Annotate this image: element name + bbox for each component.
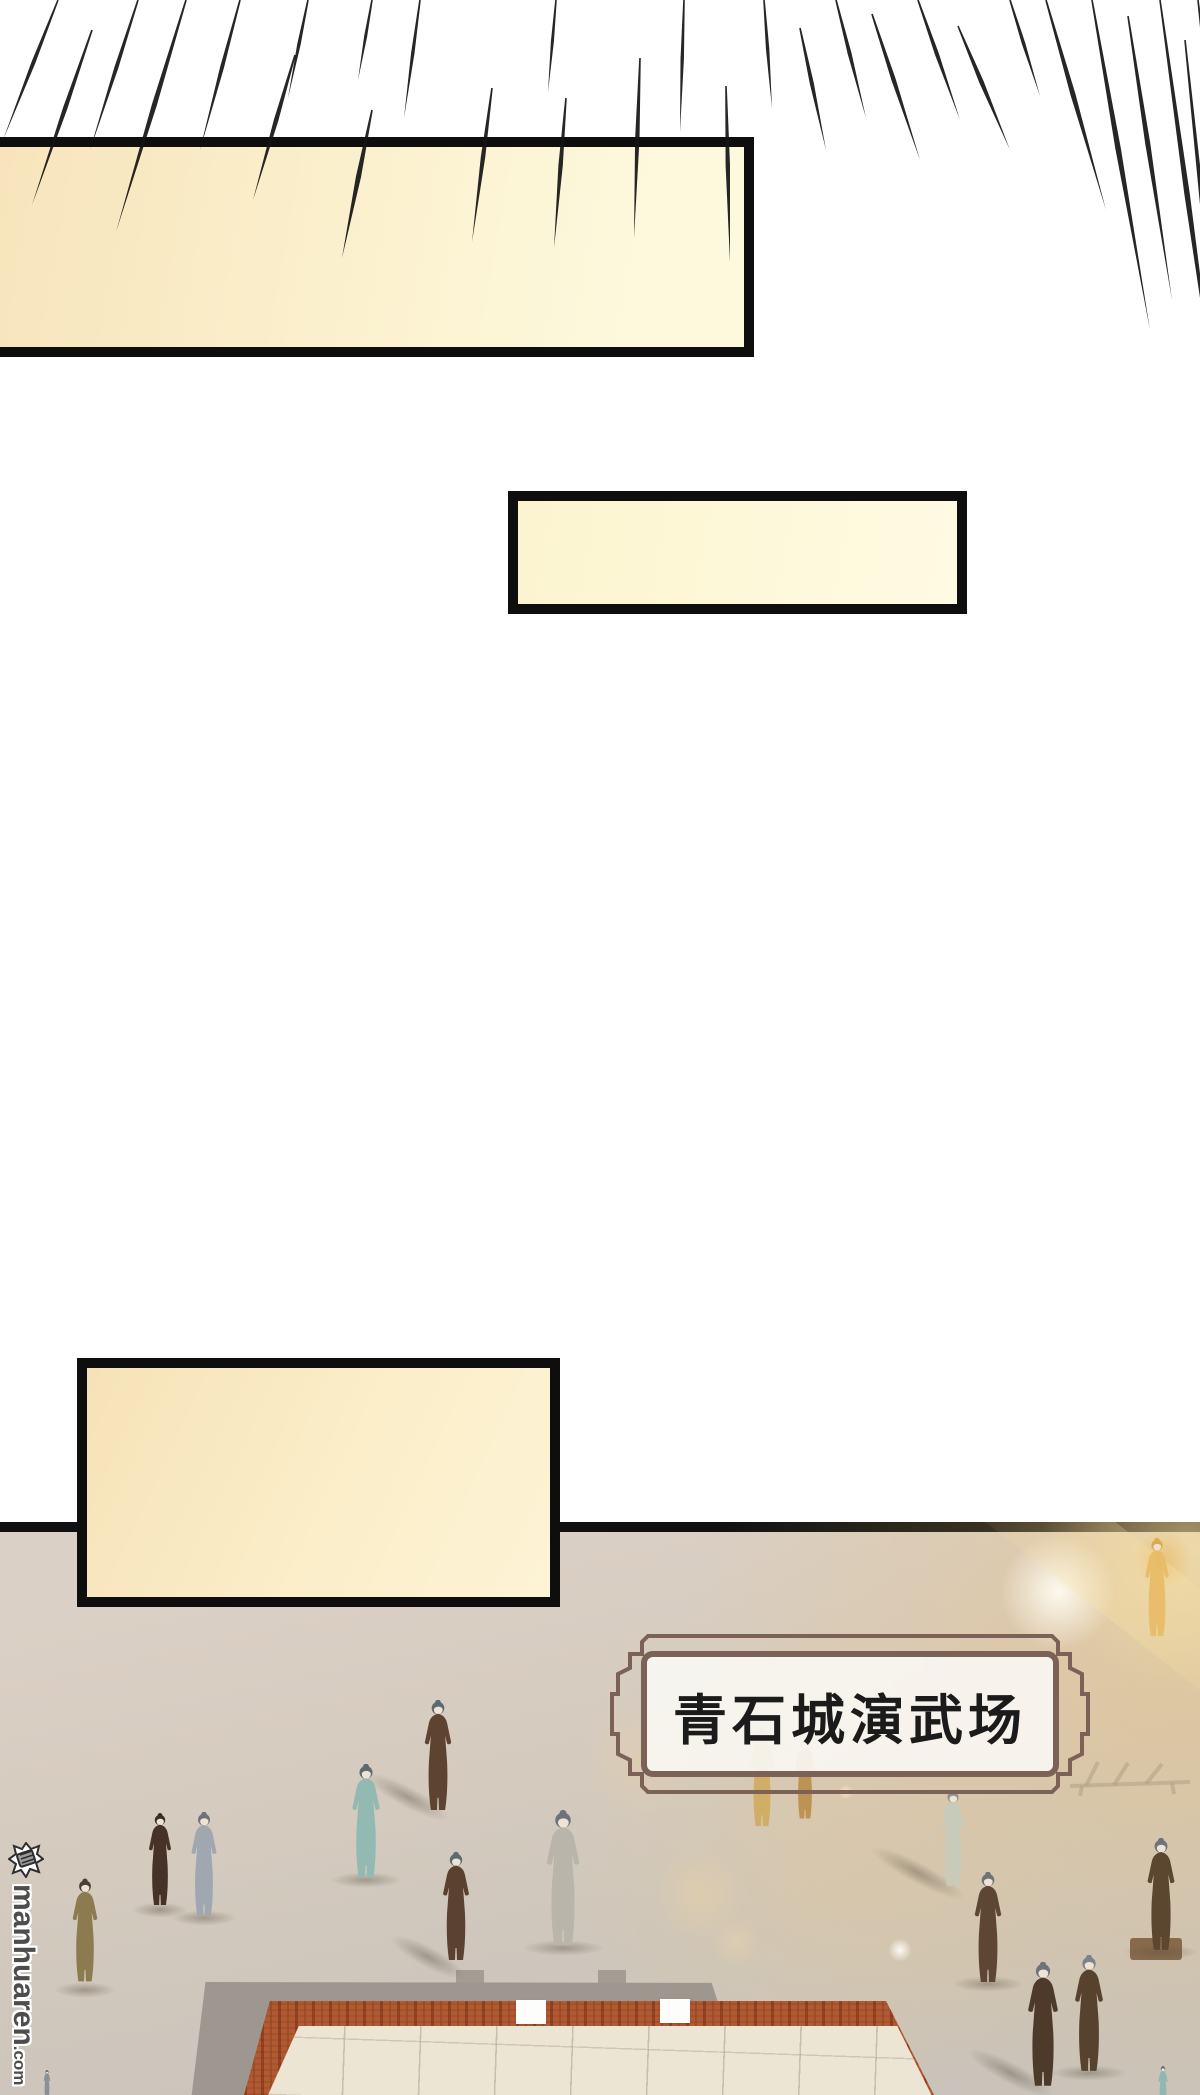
watermark-tld: .com: [10, 2046, 29, 2086]
tiled-floor: [268, 2026, 952, 2095]
speed-lines-burst: [0, 0, 1200, 540]
location-plaque: 青石城演武场: [608, 1628, 1092, 1800]
robed-figure: [143, 1810, 177, 1910]
robed-figure: [1146, 2066, 1180, 2095]
plaque-title: 青石城演武场: [608, 1676, 1092, 1755]
robed-figure: [538, 1810, 588, 1948]
robed-figure: [1066, 1955, 1112, 2073]
stone-post: [598, 1970, 626, 1984]
arena-scene: [0, 1522, 1200, 2095]
robed-figure: [66, 1872, 104, 1990]
watermark-site: manhuaren: [7, 1884, 40, 2046]
robed-figure: [966, 1872, 1010, 1984]
comic-page: 青石城演武场 manhuaren.com: [0, 0, 1200, 2095]
robed-figure: [436, 1842, 476, 1972]
robed-figure: [184, 1812, 224, 1918]
speech-box-bottom: [77, 1358, 560, 1607]
white-seat-block: [660, 1999, 690, 2023]
manhuaren-logo-icon: [8, 1842, 44, 1878]
robed-figure: [416, 1700, 460, 1812]
watermark-text: manhuaren.com: [6, 1884, 40, 2085]
robed-figure: [1138, 1838, 1184, 1952]
robed-figure: [1136, 1538, 1178, 1638]
white-seat-block: [516, 2000, 546, 2024]
